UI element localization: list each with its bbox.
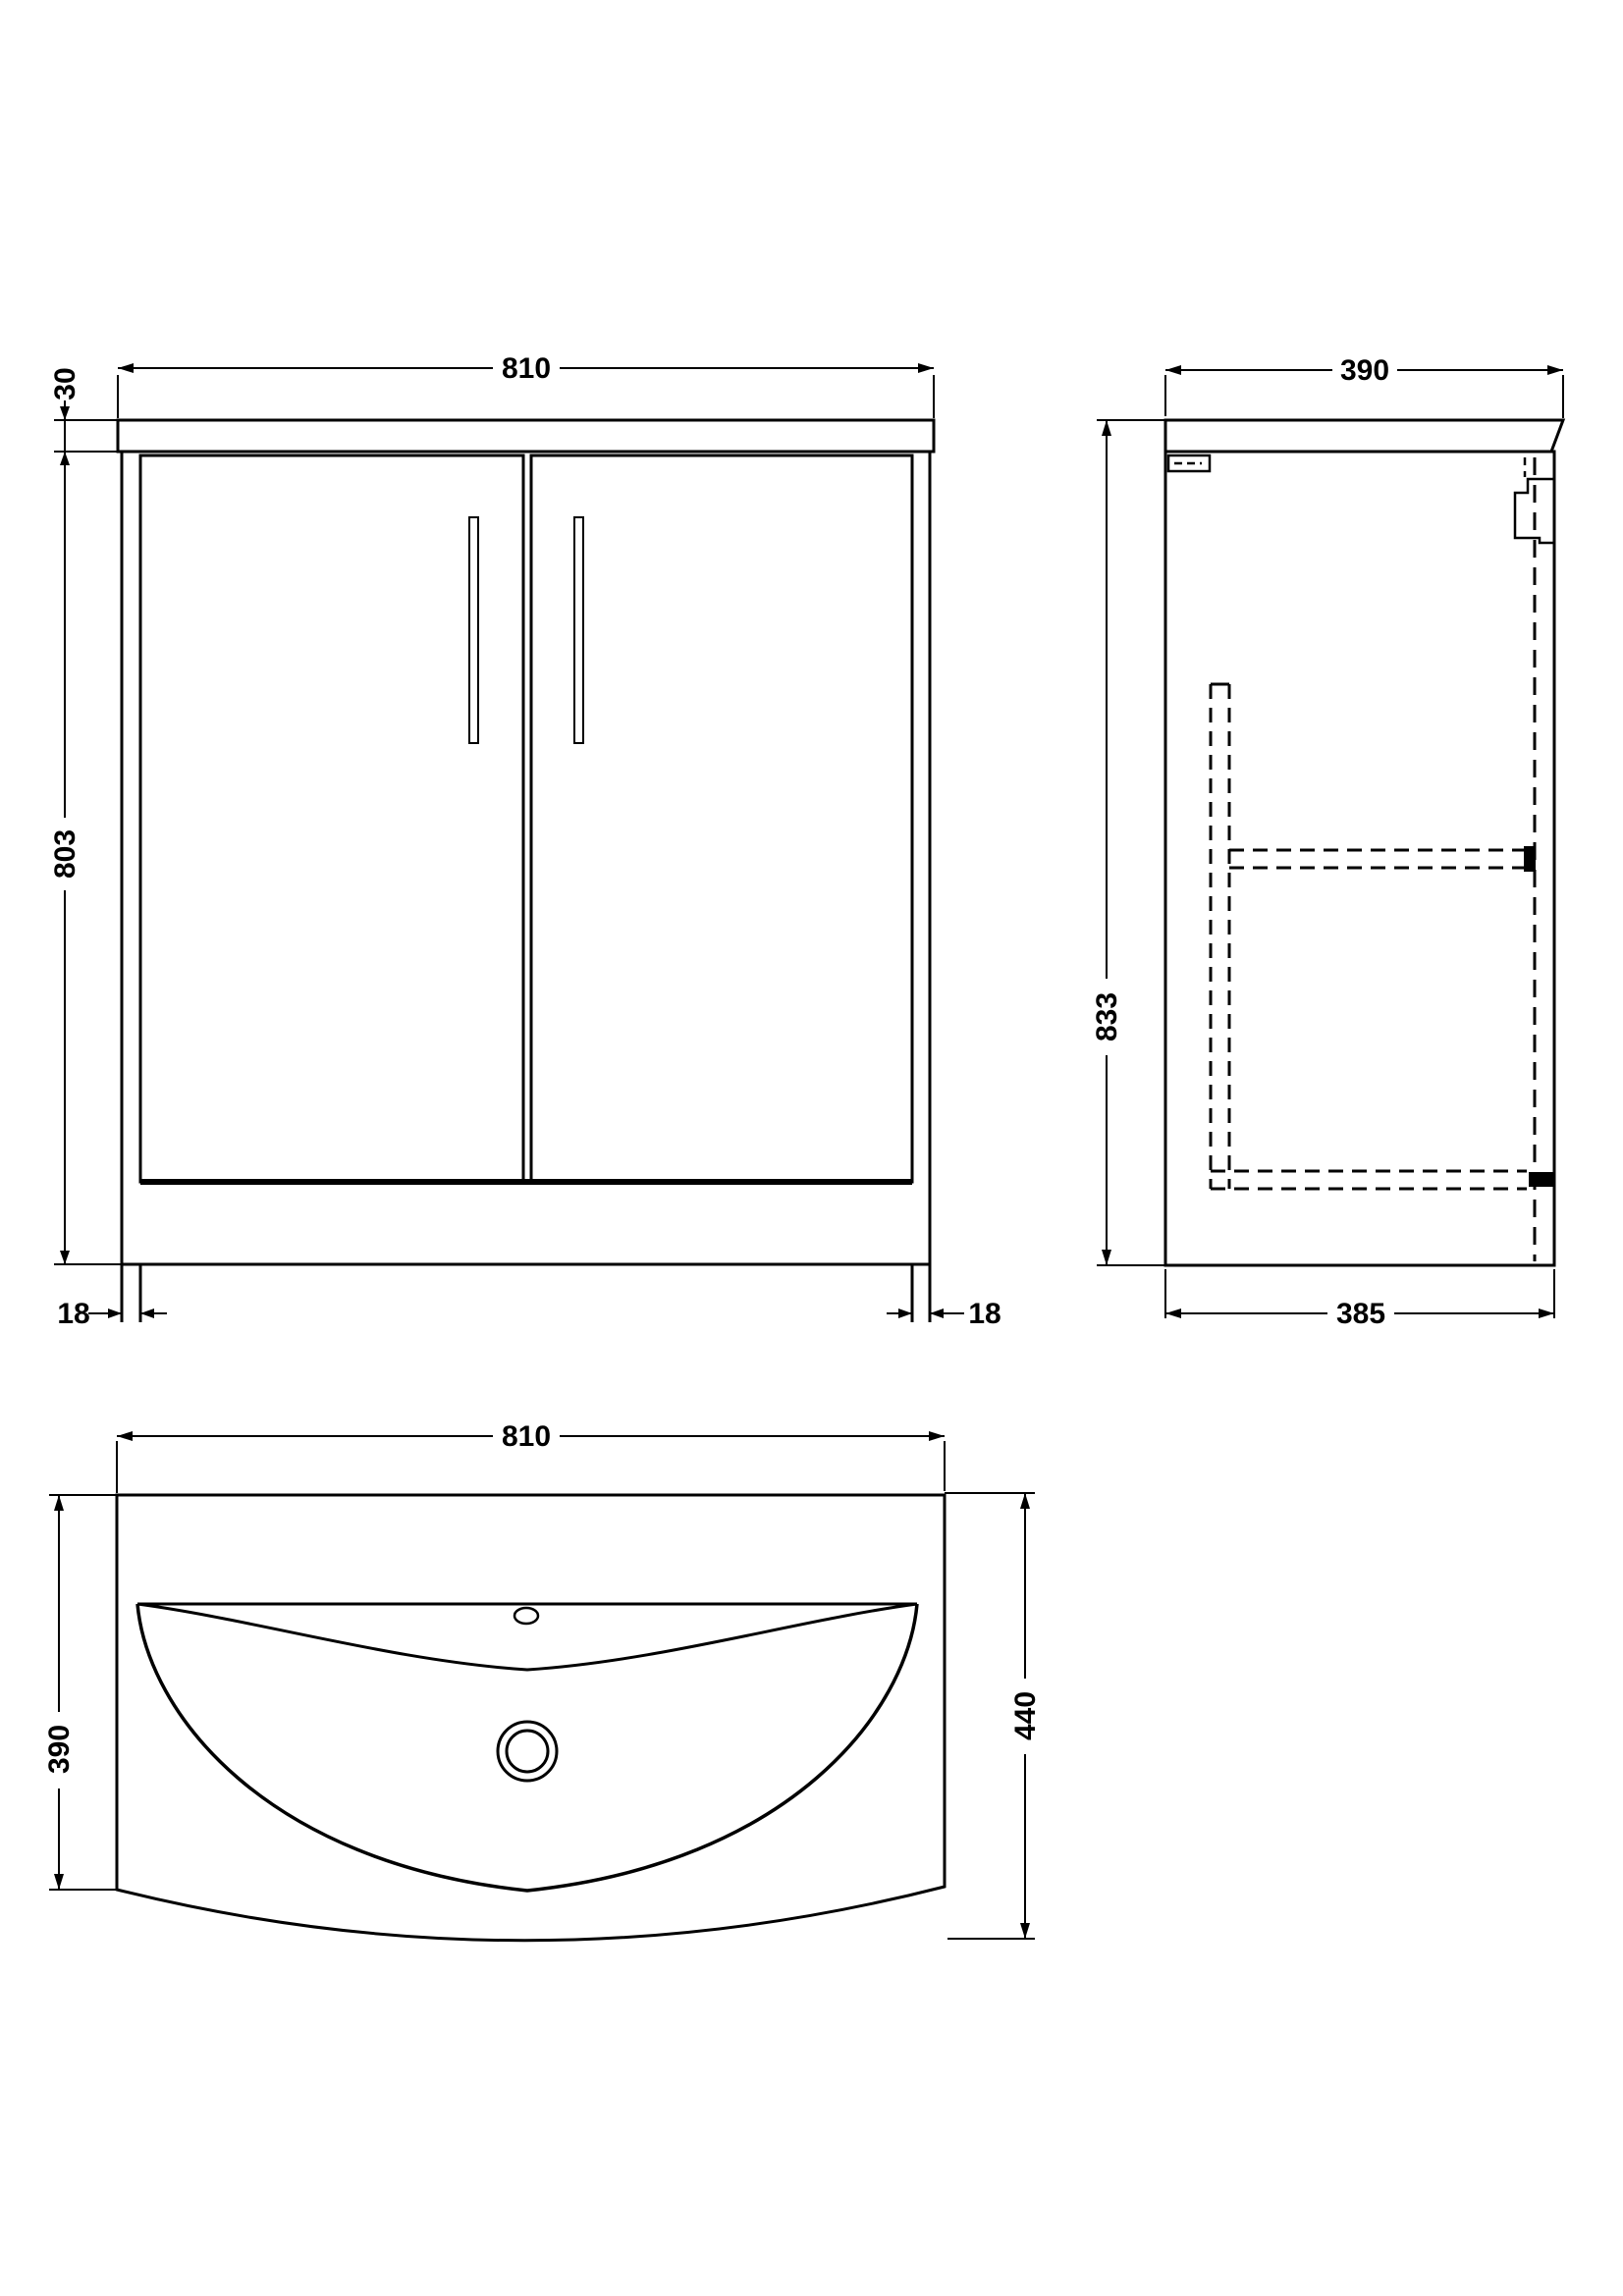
countertop-outline (118, 420, 934, 452)
side-depth-label: 390 (1340, 354, 1389, 387)
front-height-label: 803 (49, 829, 81, 879)
basin-depth-label: 390 (43, 1725, 76, 1774)
basin-width-dimension: 810 (117, 1420, 945, 1493)
right-door-handle (574, 517, 583, 743)
front-leg-left-label: 18 (57, 1298, 89, 1330)
arrowhead (1020, 1493, 1030, 1509)
arrowhead (117, 1431, 133, 1441)
arrowhead (1020, 1923, 1030, 1939)
basin-bowl-edge (137, 1604, 917, 1891)
right-door (531, 455, 912, 1182)
front-left-dimensions: 30 803 (49, 367, 122, 1264)
basin-width-label: 810 (502, 1420, 551, 1453)
front-top-thickness-label: 30 (49, 367, 81, 400)
arrowhead (1102, 1250, 1111, 1265)
front-view: 810 30 803 18 (49, 352, 1001, 1330)
basin-outer-rim (117, 1495, 945, 1941)
front-leg-right-label: 18 (968, 1298, 1001, 1330)
arrowhead (929, 1431, 945, 1441)
side-panel-outline (1165, 452, 1554, 1265)
side-height-dimension: 833 (1091, 420, 1165, 1265)
basin-plan-view: 810 390 440 (43, 1420, 1042, 1941)
cabinet-body-outline (122, 452, 930, 1264)
arrowhead (60, 452, 70, 465)
technical-drawing-canvas: 810 30 803 18 (0, 0, 1623, 2296)
front-width-dimension: 810 (118, 352, 934, 418)
basin-shelf-wave-edge (137, 1604, 917, 1670)
arrowhead (108, 1308, 122, 1318)
side-height-label: 833 (1091, 992, 1123, 1041)
shelf-end-fixing (1524, 846, 1536, 872)
arrowhead (118, 363, 134, 373)
side-view: 390 833 (1091, 354, 1563, 1330)
arrowhead (918, 363, 934, 373)
arrowhead (1165, 365, 1181, 375)
bottom-panel-end-fixing (1529, 1172, 1553, 1187)
arrowhead (1165, 1308, 1181, 1318)
arrowhead (1547, 365, 1563, 375)
left-door (140, 455, 523, 1182)
arrowhead (54, 1495, 64, 1511)
side-depth-dimension: 390 (1165, 354, 1563, 418)
side-base-depth-dimension: 385 (1165, 1269, 1554, 1330)
front-width-label: 810 (502, 352, 551, 385)
wall-bracket-detail (1168, 455, 1210, 471)
arrowhead (930, 1308, 944, 1318)
arrowhead (898, 1308, 912, 1318)
back-panel-hidden-line (1211, 684, 1229, 1189)
arrowhead (60, 406, 70, 420)
arrowhead (1102, 420, 1111, 436)
arrowhead (60, 1251, 70, 1264)
hidden-detail-lines (1211, 457, 1553, 1261)
front-leg-dimension-right: 18 (887, 1298, 1001, 1330)
arrowhead (140, 1308, 154, 1318)
basin-total-depth-label: 440 (1009, 1691, 1042, 1740)
tap-hole (514, 1608, 538, 1624)
front-leg-dimension-left: 18 (57, 1298, 167, 1330)
waste-inner-ring (507, 1731, 548, 1772)
shelf-hidden-line (1229, 850, 1524, 868)
side-base-depth-label: 385 (1336, 1298, 1385, 1330)
basin-total-depth-dimension: 440 (945, 1493, 1042, 1939)
bottom-panel-hidden-line (1211, 1171, 1527, 1189)
left-door-handle (469, 517, 478, 743)
arrowhead (1539, 1308, 1554, 1318)
legs (122, 1264, 930, 1322)
countertop-profile (1165, 420, 1563, 452)
arrowhead (54, 1874, 64, 1890)
drawing-sheet: 810 30 803 18 (0, 0, 1623, 2296)
basin-depth-dimension: 390 (43, 1495, 117, 1890)
